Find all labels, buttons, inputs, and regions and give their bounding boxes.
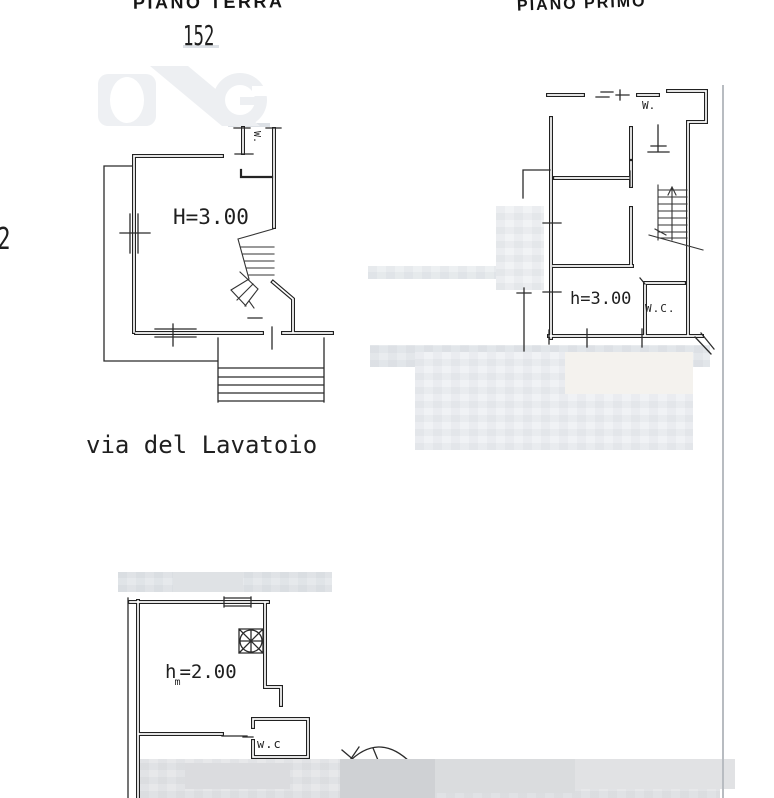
blur-strip-patch: [435, 759, 575, 793]
first-floor-height-label: h=3.00: [570, 289, 631, 309]
title-first-floor-text: PIANO PRIMO: [517, 0, 667, 12]
floor-plan-linework: [0, 0, 774, 798]
staircase-winding: [231, 229, 274, 308]
height-rest: =2.00: [179, 661, 236, 683]
title-ground-floor-text: PIANO TERRA: [133, 0, 303, 10]
staircase-straight: [649, 185, 703, 250]
interior-wall-extension: [222, 736, 253, 737]
ground-floor-height-label: H=3.00: [173, 205, 249, 229]
sheet-number: 152: [183, 19, 214, 52]
ground-floor-closet-label: W.: [251, 131, 262, 143]
entrance-steps: [218, 338, 324, 402]
scanned-floor-plan-page: PIANO TERRA PIANO PRIMO 152 2 H=3.00 W. …: [0, 0, 774, 798]
bottom-plan-height-label: hm=2.00: [165, 661, 237, 683]
blur-strip-patch: [185, 763, 290, 789]
watermark-logo: [98, 66, 274, 127]
blur-strip-bottom: [140, 759, 720, 798]
first-floor-closet-label: W.: [642, 99, 655, 112]
blur-strip-patch: [575, 759, 735, 789]
flue-fan-icon: [239, 629, 263, 653]
plan-first-floor: [517, 90, 714, 354]
top-wall-fixtures: [596, 90, 629, 100]
plan-ground-floor: [104, 128, 332, 402]
dimension-line: [517, 288, 531, 351]
margin-page-number: 2: [0, 222, 11, 257]
title-first-floor: PIANO PRIMO: [517, 0, 667, 12]
bottom-plan-wc-label: w.c: [257, 737, 282, 751]
first-floor-wc-label: W.C.: [645, 302, 676, 315]
balcony-outline: [523, 170, 550, 198]
height-subscript: m: [174, 677, 180, 688]
title-ground-floor: PIANO TERRA: [133, 0, 303, 10]
scanner-artifact-line: [722, 85, 724, 798]
street-name-label: via del Lavatoio: [86, 431, 317, 459]
blur-strip-patch: [340, 759, 435, 798]
interior-wall: [241, 170, 272, 177]
